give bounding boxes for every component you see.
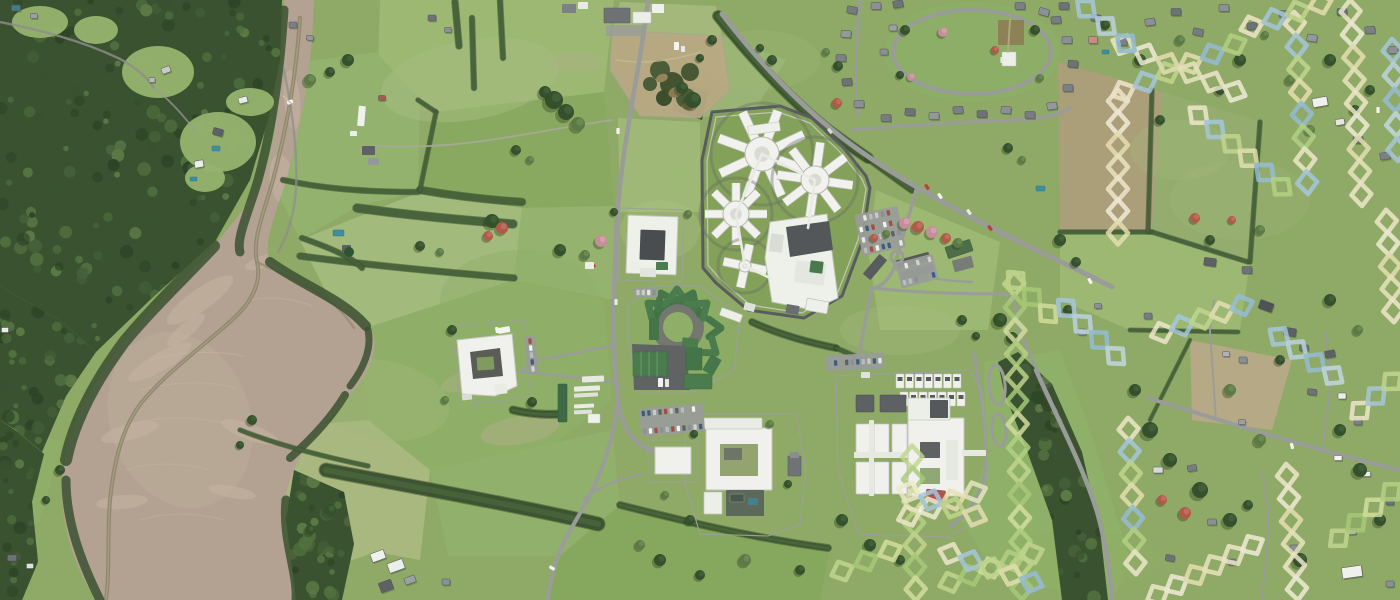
aerial-photo-viewport <box>0 0 1400 600</box>
aerial-photograph <box>0 0 1400 600</box>
staff-village-oval <box>884 2 1060 102</box>
